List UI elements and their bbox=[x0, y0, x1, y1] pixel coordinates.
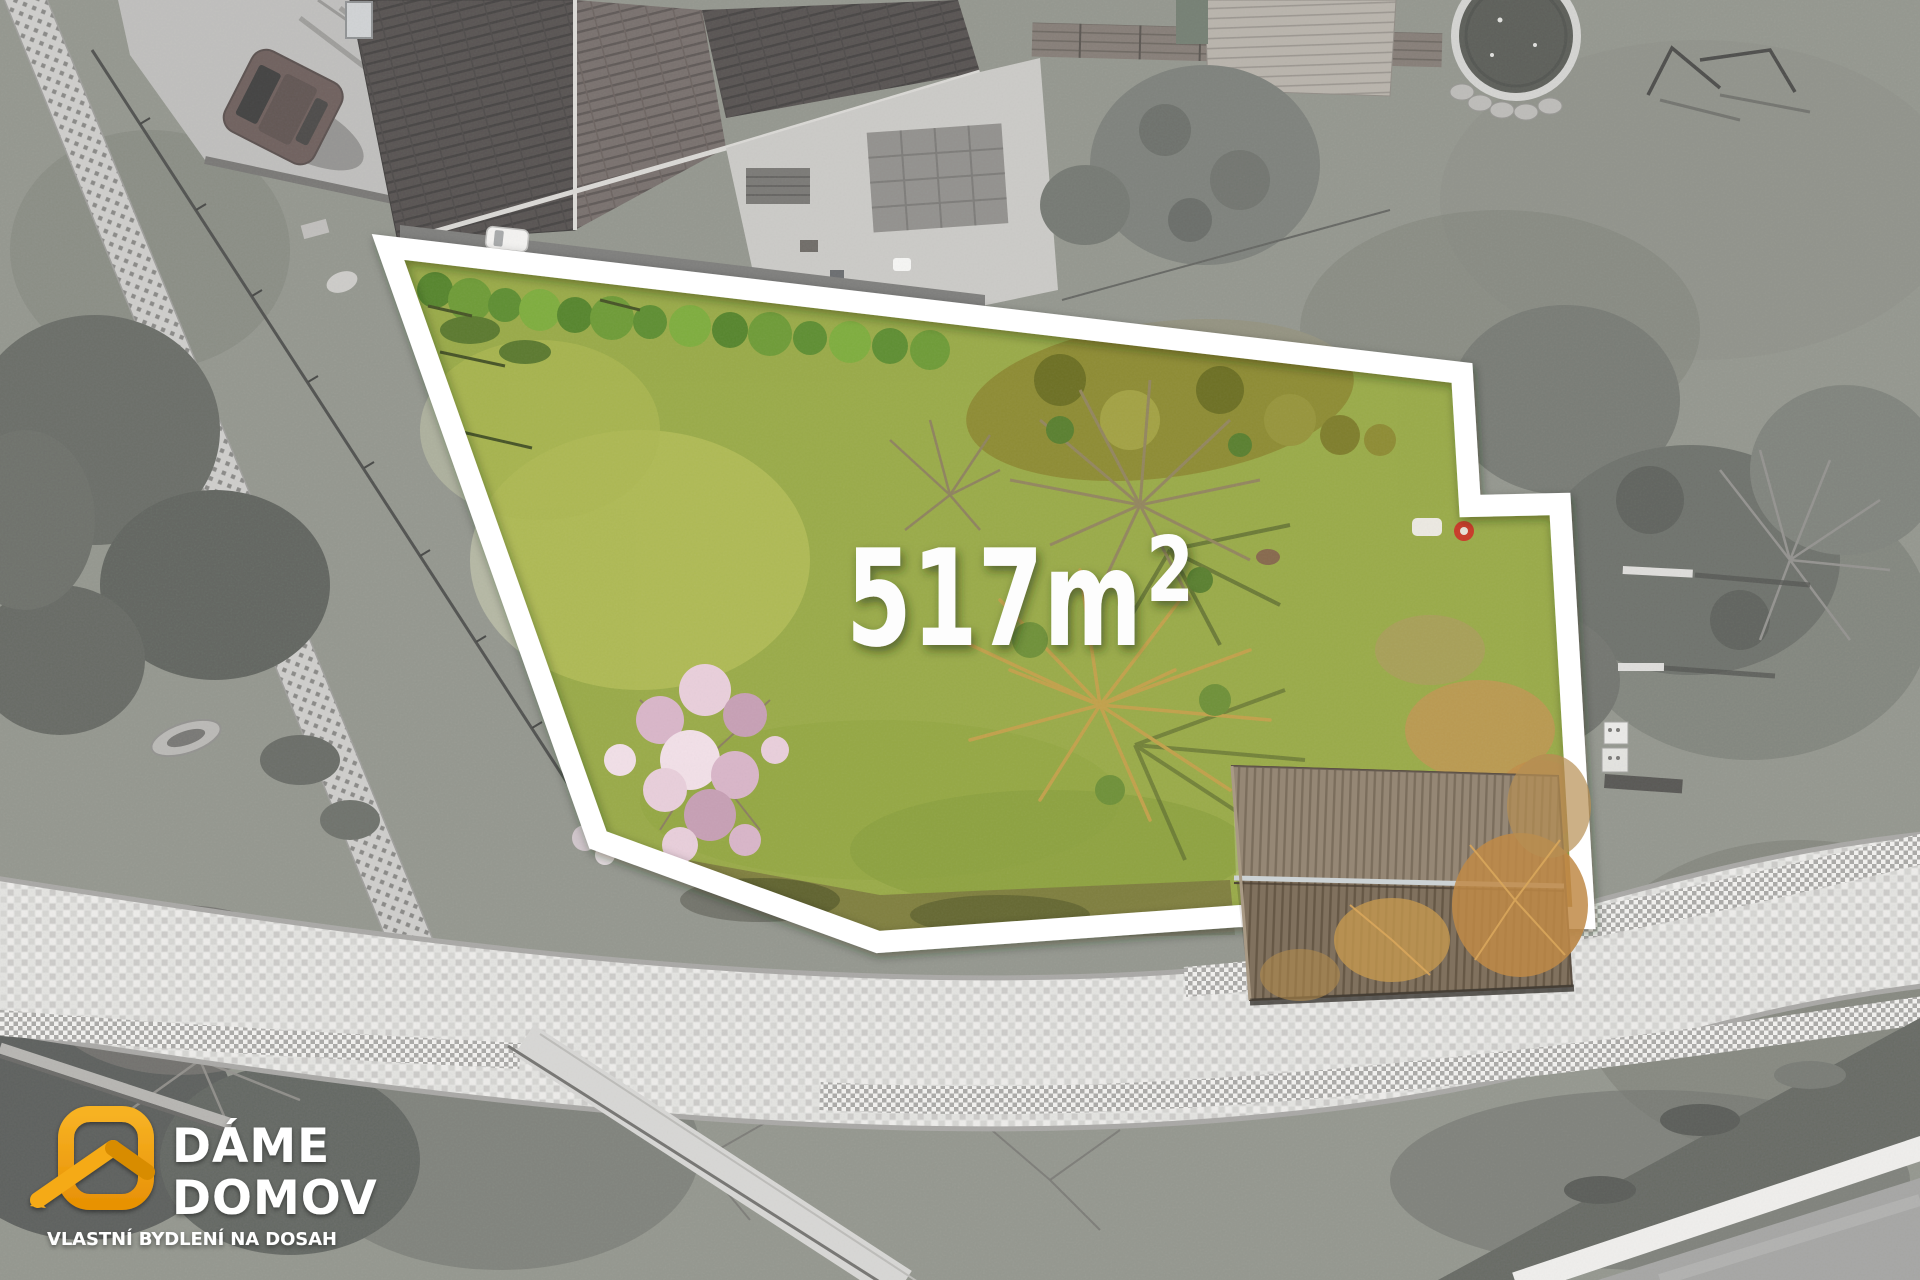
plot-area-label: 517m bbox=[846, 521, 1142, 677]
plot-area-superscript: 2 bbox=[1146, 518, 1194, 623]
brand-name-line2: DOMOV bbox=[172, 1171, 378, 1226]
shed-roof bbox=[1232, 754, 1591, 1002]
brand-name-line1: DÁME bbox=[172, 1119, 330, 1174]
brand-tagline: VLASTNÍ BYDLENÍ NA DOSAH bbox=[47, 1228, 337, 1250]
aerial-photo: 517m 2 DÁME DOMOV VLASTNÍ BYDLENÍ NA DOS… bbox=[0, 0, 1920, 1280]
